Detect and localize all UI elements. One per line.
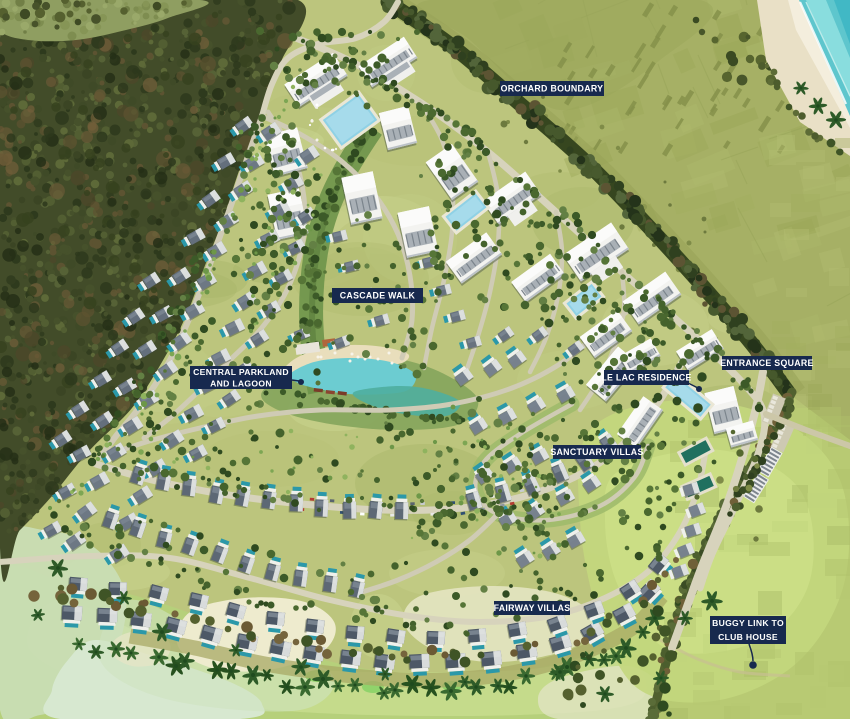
svg-text:CENTRAL PARKLAND: CENTRAL PARKLAND	[193, 367, 289, 377]
svg-text:CASCADE WALK: CASCADE WALK	[340, 291, 416, 301]
svg-text:AND LAGOON: AND LAGOON	[210, 378, 272, 388]
svg-text:BUGGY LINK TO: BUGGY LINK TO	[712, 618, 784, 628]
svg-text:FAIRWAY VILLAS: FAIRWAY VILLAS	[494, 603, 571, 613]
svg-text:SANCTUARY VILLAS: SANCTUARY VILLAS	[550, 447, 643, 457]
svg-text:LE LAC RESIDENCE: LE LAC RESIDENCE	[601, 373, 691, 383]
svg-text:ENTRANCE SQUARE: ENTRANCE SQUARE	[720, 358, 813, 368]
svg-text:ORCHARD BOUNDARY: ORCHARD BOUNDARY	[501, 84, 604, 94]
svg-text:CLUB HOUSE: CLUB HOUSE	[718, 632, 778, 642]
